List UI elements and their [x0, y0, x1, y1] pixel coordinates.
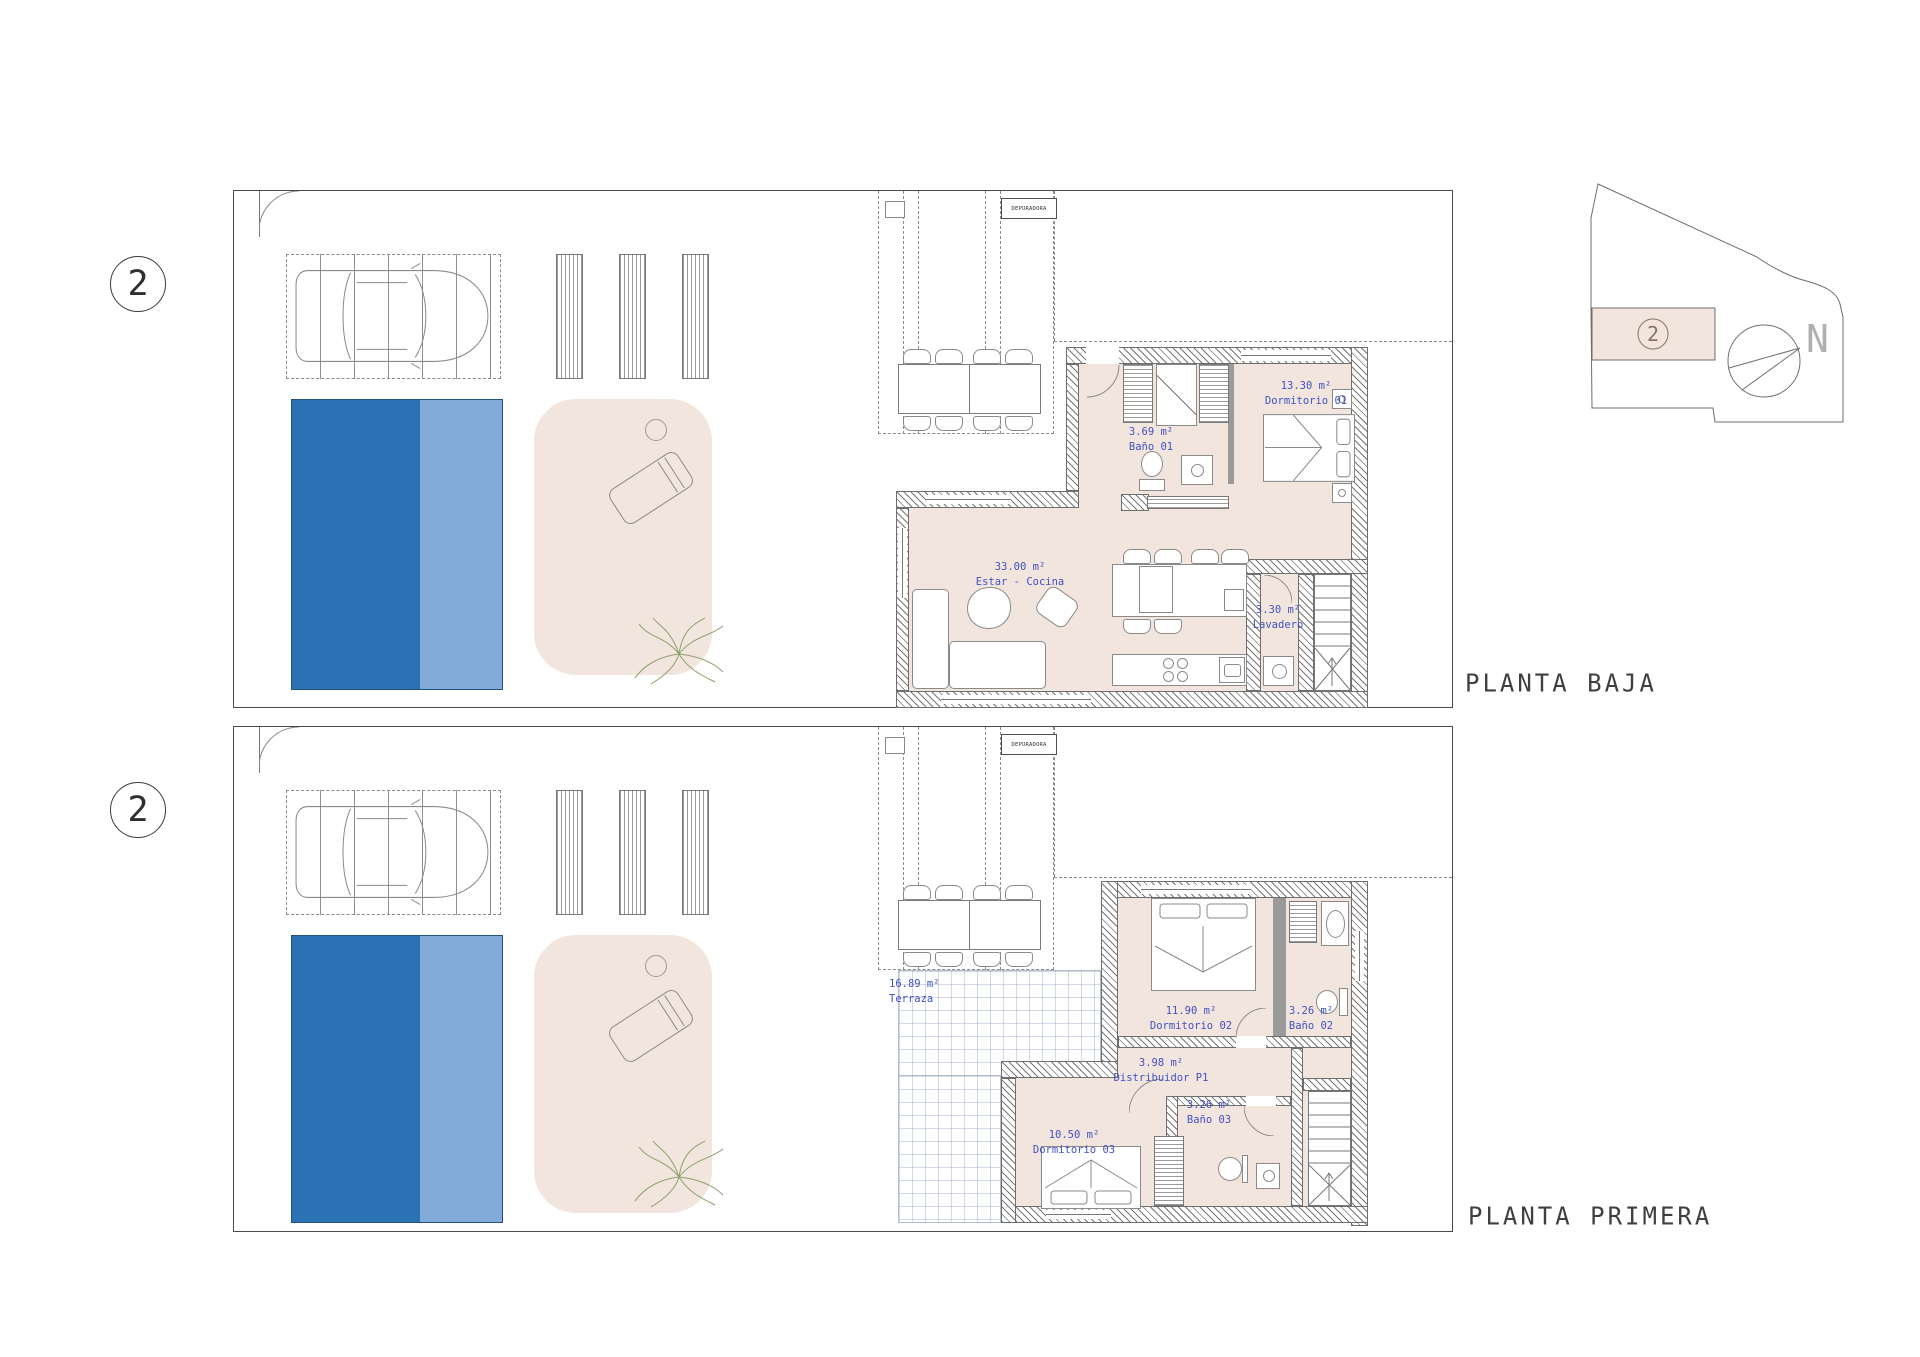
toilet-tank	[1242, 1155, 1248, 1183]
room-name: Estar - Cocina	[976, 575, 1065, 590]
chair-icon	[903, 349, 931, 364]
bath3-door-arc	[1244, 1106, 1274, 1136]
basin-bowl	[1326, 910, 1345, 938]
pergola-slat-bar	[619, 254, 646, 379]
plan-planta-baja: DEPURADORA	[233, 190, 1453, 708]
swimming-pool	[291, 399, 503, 690]
pergola-slat-bar	[682, 254, 709, 379]
sofa-chaise	[912, 589, 949, 689]
room-label-bano03: 3.26 m² Baño 03	[1187, 1098, 1231, 1128]
wall-terrace-divider	[1101, 881, 1118, 1076]
window-line	[1359, 931, 1360, 981]
room-area: 3.69 m²	[1129, 425, 1173, 440]
terrace-tiles	[898, 1076, 1001, 1223]
depuradora-box: DEPURADORA	[1001, 734, 1057, 755]
unit-marker-baja: 2	[110, 256, 166, 312]
room-area: 3.26 m²	[1289, 1004, 1333, 1019]
dining-table	[969, 900, 1041, 950]
pool-shallow-zone	[420, 936, 502, 1222]
stool-icon	[1154, 619, 1182, 634]
room-label-estar-cocina: 33.00 m² Estar - Cocina	[976, 560, 1065, 590]
wall-stairs-top	[1303, 1078, 1351, 1091]
chair-icon	[1005, 885, 1033, 900]
unit-number: 2	[127, 790, 148, 830]
chair-icon	[1005, 952, 1033, 967]
sofa-seats	[949, 641, 1046, 689]
stool-icon	[1123, 549, 1151, 564]
shower-tray	[1156, 364, 1197, 426]
dining-table	[898, 364, 970, 414]
toilet-icon	[1218, 1153, 1248, 1186]
depuradora-label: DEPURADORA	[1011, 742, 1046, 748]
wall-stair-top	[1246, 559, 1368, 574]
toilet-bowl	[1218, 1157, 1242, 1181]
unit-marker-number: 2	[1647, 322, 1659, 346]
plan-title-baja: PLANTA BAJA	[1465, 668, 1657, 697]
chair-icon	[1005, 416, 1033, 431]
pool-deep-zone	[292, 936, 420, 1222]
unit-number: 2	[127, 264, 148, 304]
plan-title-primera: PLANTA PRIMERA	[1468, 1201, 1712, 1230]
room-label-lavadero: 3.30 m² Lavadero	[1253, 603, 1304, 633]
wall-bed2-bath2-divider	[1273, 898, 1286, 1036]
room-area: 10.50 m²	[1033, 1128, 1115, 1143]
chair-icon	[973, 349, 1001, 364]
unit-marker-primera: 2	[110, 782, 166, 838]
washer-drum	[1272, 664, 1287, 679]
window-line	[1141, 889, 1251, 890]
dining-table	[969, 364, 1041, 414]
bedroom2-door-arc	[1236, 1008, 1266, 1038]
room-area: 3.30 m²	[1253, 603, 1304, 618]
toilet-tank	[1139, 479, 1165, 491]
site-outline	[1591, 184, 1843, 422]
car-icon	[290, 795, 497, 909]
pergola-slat-bar	[556, 790, 583, 915]
room-label-bano02: 3.26 m² Baño 02	[1289, 1004, 1333, 1034]
washing-machine	[1263, 656, 1294, 686]
pool-shallow-zone	[420, 400, 502, 689]
drawing-sheet: DEPURADORA	[0, 0, 1920, 1357]
hob-burner	[1177, 671, 1188, 682]
plant-icon	[631, 1139, 727, 1209]
basin-bowl	[1191, 464, 1204, 477]
laundry-door-arc	[1264, 575, 1292, 603]
room-label-dormitorio02: 11.90 m² Dormitorio 02	[1150, 1004, 1232, 1034]
utility-box-icon	[885, 737, 905, 754]
utility-box-icon	[885, 201, 905, 218]
sink-basin	[1224, 664, 1241, 677]
plot-boundary-dashed	[1054, 341, 1452, 342]
chair-icon	[903, 416, 931, 431]
hob-burner	[1163, 671, 1174, 682]
room-area: 33.00 m²	[976, 560, 1065, 575]
room-name: Baño 01	[1129, 440, 1173, 455]
patio-table-icon	[645, 419, 667, 441]
towel-louvre	[1289, 901, 1317, 943]
stool-icon	[1221, 549, 1249, 564]
room-name: Baño 02	[1289, 1019, 1333, 1034]
site-key: 2 N	[1590, 180, 1900, 430]
room-label-terraza: 16.89 m² Terraza	[889, 977, 940, 1007]
dishwasher	[1139, 566, 1173, 613]
chair-icon	[973, 416, 1001, 431]
room-name: Baño 03	[1187, 1113, 1231, 1128]
toilet-tank	[1339, 988, 1348, 1016]
room-name: Dormitorio 01	[1265, 394, 1347, 409]
window-line	[1241, 355, 1331, 356]
room-label-dormitorio01: 13.30 m² Dormitorio 01	[1265, 379, 1347, 409]
chair-icon	[935, 416, 963, 431]
washbasin-icon	[1181, 455, 1213, 485]
room-name: Dormitorio 03	[1033, 1143, 1115, 1158]
entrance-door-gap	[1086, 347, 1119, 364]
room-name: Dormitorio 02	[1150, 1019, 1232, 1034]
washbasin-icon	[1256, 1163, 1280, 1189]
island-sink	[1224, 589, 1244, 611]
room-label-distribuidor: 3.98 m² Distribuidor P1	[1114, 1056, 1209, 1086]
double-bed-icon	[1263, 414, 1355, 482]
room-area: 13.30 m²	[1265, 379, 1347, 394]
room-name: Distribuidor P1	[1114, 1071, 1209, 1086]
hob-burner	[1177, 658, 1188, 669]
patio-table-icon	[645, 955, 667, 977]
plot-boundary-dashed	[1054, 877, 1452, 878]
wall-right	[1351, 347, 1368, 708]
door-gap	[1246, 1096, 1276, 1106]
window-line	[926, 499, 1011, 500]
gate-door-arc	[259, 727, 300, 768]
plant-icon	[631, 616, 727, 686]
room-name: Terraza	[889, 992, 940, 1007]
chair-icon	[1005, 349, 1033, 364]
north-label: N	[1806, 317, 1829, 361]
sun-lounger-icon	[601, 449, 701, 527]
dining-table	[898, 900, 970, 950]
staircase	[1314, 574, 1351, 691]
nightstand-icon	[1332, 483, 1352, 503]
stool-icon	[1123, 619, 1151, 634]
chair-icon	[903, 885, 931, 900]
stool-icon	[1154, 549, 1182, 564]
room-area: 16.89 m²	[889, 977, 940, 992]
chair-icon	[973, 885, 1001, 900]
hob-burner	[1163, 658, 1174, 669]
wardrobe-louvre	[1199, 364, 1229, 423]
wall-bath-bottom	[1121, 494, 1149, 511]
double-bed-icon	[1151, 898, 1256, 991]
chair-icon	[935, 885, 963, 900]
wall-hall-left	[1066, 364, 1079, 491]
entrance-door-arc	[1087, 365, 1120, 398]
room-label-bano01: 3.69 m² Baño 01	[1129, 425, 1173, 455]
wall-bedroom3-top	[1001, 1061, 1118, 1078]
shower-louvre	[1154, 1136, 1184, 1206]
radiator-louvre	[1147, 496, 1229, 509]
pool-deep-zone	[292, 400, 420, 689]
swimming-pool	[291, 935, 503, 1223]
room-area: 3.26 m²	[1187, 1098, 1231, 1113]
toilet-icon	[1139, 451, 1165, 491]
window-line	[1046, 1214, 1111, 1215]
window-line	[902, 528, 903, 598]
staircase	[1308, 1091, 1351, 1206]
sun-lounger-icon	[601, 987, 701, 1065]
coffee-table	[967, 587, 1011, 629]
room-label-dormitorio03: 10.50 m² Dormitorio 03	[1033, 1128, 1115, 1158]
depuradora-label: DEPURADORA	[1011, 206, 1046, 212]
depuradora-box: DEPURADORA	[1001, 198, 1057, 219]
chair-icon	[935, 349, 963, 364]
kitchen-sink	[1219, 657, 1245, 683]
pergola-slat-bar	[682, 790, 709, 915]
gate-door-arc	[259, 191, 300, 232]
plan-planta-primera: DEPURADORA	[233, 726, 1453, 1232]
stool-icon	[1191, 549, 1219, 564]
wall-stair-divider	[1291, 1048, 1303, 1206]
washbasin-icon	[1321, 901, 1349, 946]
room-area: 3.98 m²	[1114, 1056, 1209, 1071]
basin-bowl	[1263, 1170, 1275, 1182]
wall-corridor	[1118, 1036, 1351, 1048]
room-name: Lavadero	[1253, 618, 1304, 633]
wardrobe-louvre	[1123, 364, 1153, 423]
chair-icon	[903, 952, 931, 967]
pergola-slat-bar	[619, 790, 646, 915]
chair-icon	[935, 952, 963, 967]
chair-icon	[973, 952, 1001, 967]
car-icon	[290, 259, 497, 373]
lamp	[1338, 489, 1346, 497]
window-line	[941, 699, 1091, 700]
wall-bedroom3-left	[1001, 1078, 1016, 1223]
pergola-slat-bar	[556, 254, 583, 379]
room-area: 11.90 m²	[1150, 1004, 1232, 1019]
